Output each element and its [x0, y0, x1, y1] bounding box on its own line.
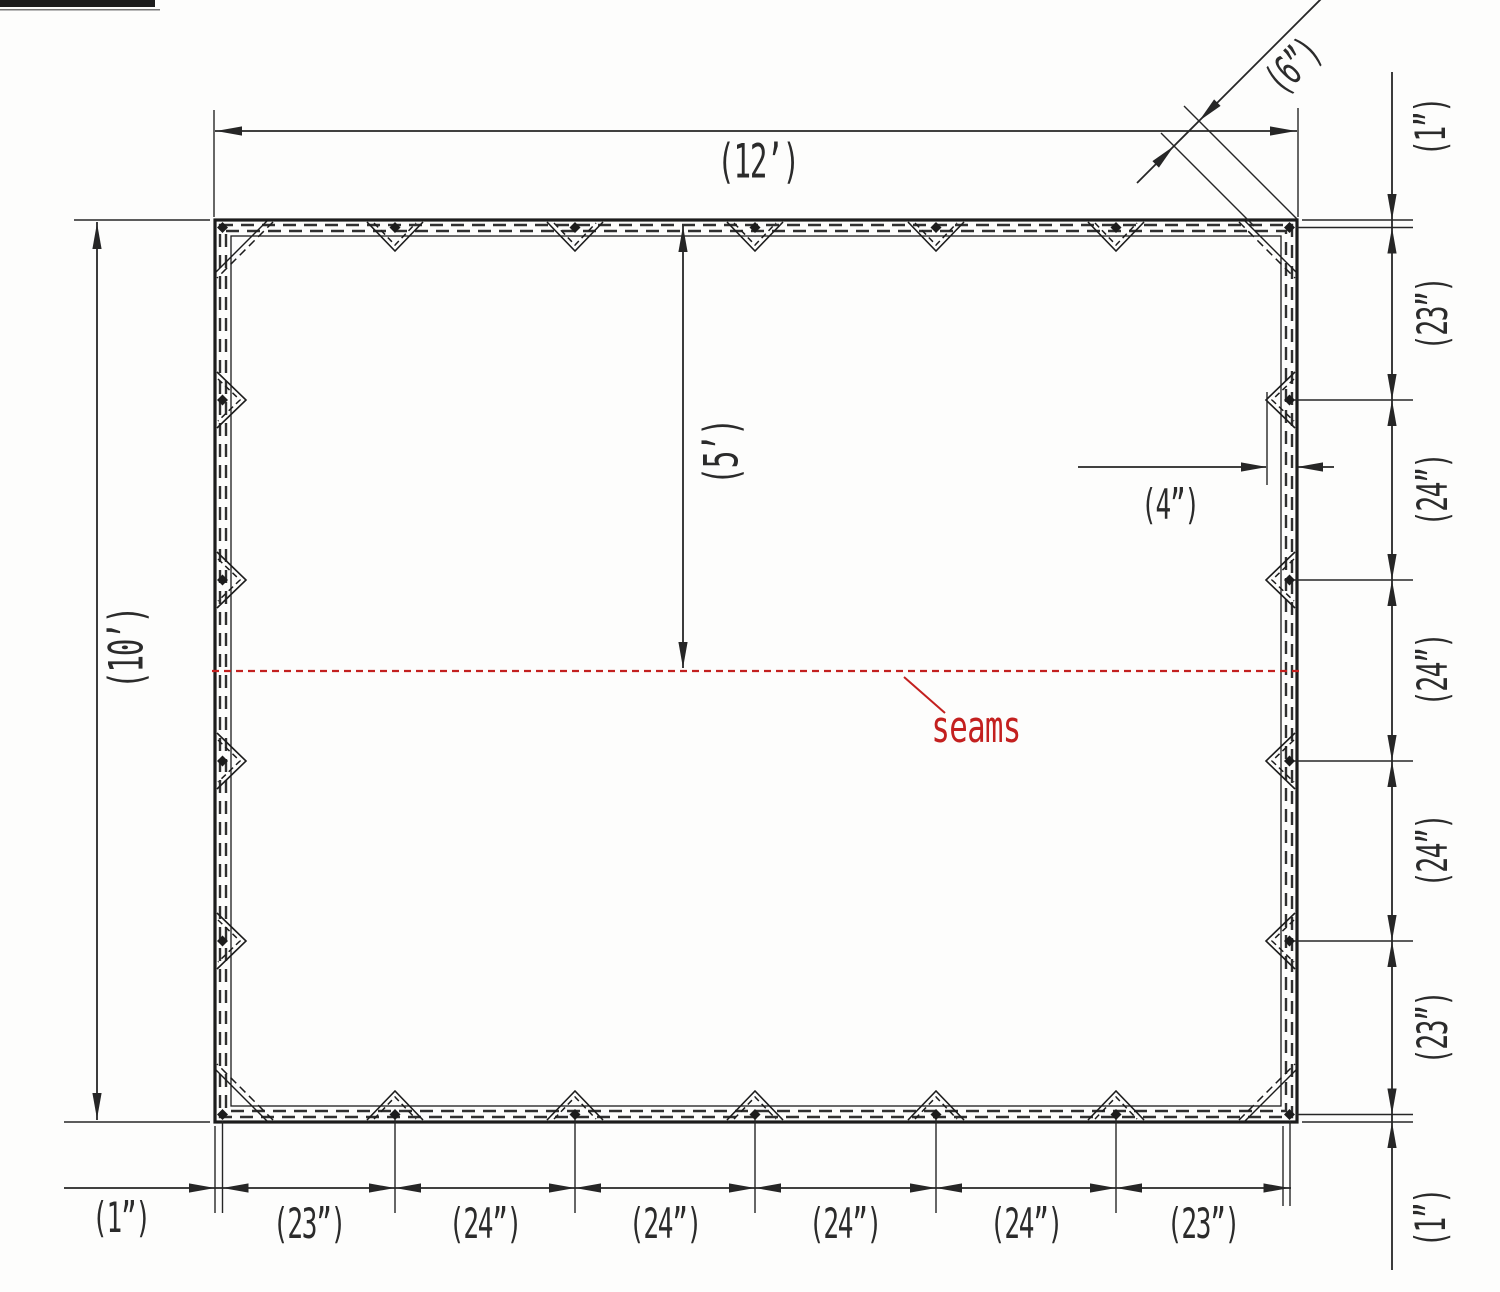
seam-line	[212, 671, 1300, 713]
bottom-chain-label: (24”)	[449, 1203, 521, 1245]
bottom-chain-label: (24”)	[990, 1203, 1062, 1245]
seams-annotation: seams	[931, 706, 1020, 750]
right-chain-label: (1”)	[1410, 98, 1452, 156]
bottom-chain-label: (23”)	[273, 1203, 345, 1245]
tarp-linework	[0, 0, 1500, 1292]
dimension-linework	[64, 0, 1413, 1270]
right-chain-label: (23”)	[1412, 278, 1454, 350]
right-chain-label: (1”)	[1410, 1189, 1452, 1247]
right-chain-label: (24”)	[1412, 454, 1454, 526]
bottom-chain-label: (24”)	[629, 1203, 701, 1245]
tarp-technical-drawing: (12’) (10’) (5’) (6”) (4”) (1”) (23”) (2…	[0, 0, 1500, 1292]
bottom-chain-label: (23”)	[1167, 1203, 1239, 1245]
dim-overall-height-label: (10’)	[104, 607, 151, 689]
right-chain-label: (24”)	[1412, 634, 1454, 706]
right-chain-label: (24”)	[1412, 815, 1454, 887]
dim-seam-offset-label: (5’)	[699, 419, 746, 484]
bottom-chain-label: (1”)	[92, 1197, 150, 1239]
scan-artifact-bar	[0, 0, 160, 11]
dim-edge-patch-label: (4”)	[1141, 484, 1199, 526]
bottom-chain-label: (24”)	[809, 1203, 881, 1245]
dim-overall-width-label: (12’)	[717, 139, 799, 186]
right-chain-label: (23”)	[1412, 992, 1454, 1064]
